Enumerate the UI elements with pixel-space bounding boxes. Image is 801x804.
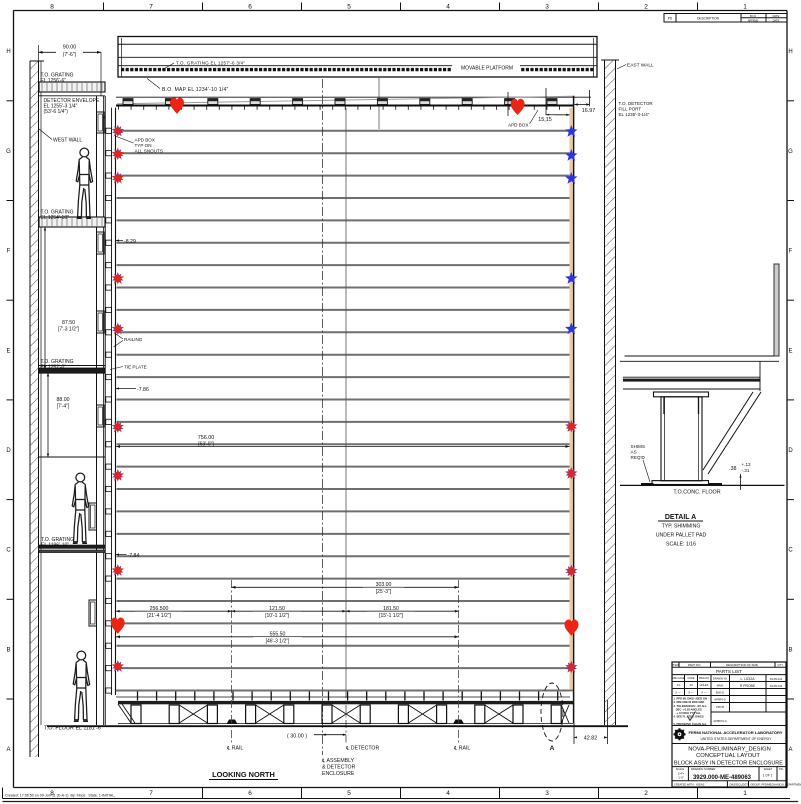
svg-text:E: E [6,348,10,354]
svg-text:Created: 17:06:50 on 09-Jun-11: Created: 17:06:50 on 09-Jun-11 (D-A-1) B… [5,794,115,798]
svg-text:PD: PD [668,17,673,21]
svg-text:A: A [6,747,10,753]
svg-text:[10'-1 1/2"]: [10'-1 1/2"] [265,613,289,619]
svg-text:87.50: 87.50 [62,320,75,326]
svg-text:3929.000-ME-489063: 3929.000-ME-489063 [693,775,752,781]
svg-text:3: 3 [545,4,549,11]
svg-text:F: F [789,249,793,255]
svg-text:3. TOLERANCES: .XX ALL: 3. TOLERANCES: .XX ALL [674,704,708,708]
svg-text:℄ ASSEMBLY: ℄ ASSEMBLY [321,758,355,764]
svg-text:256.500: 256.500 [150,606,169,612]
svg-text:EL 1196'-10": EL 1196'-10" [41,543,69,549]
svg-text:DWG-NO: DWG-NO [699,677,709,680]
svg-text:℄ RAIL: ℄ RAIL [453,746,470,752]
svg-text:DEC -+0.03 ANGLES: DEC -+0.03 ANGLES [674,707,702,711]
svg-text:QTY.: QTY. [778,663,784,667]
svg-text:RAILING: RAILING [124,337,143,342]
svg-text:CODE: CODE [688,677,695,680]
svg-text:4: 4 [446,4,450,11]
svg-text:[15'-1 1/2"]: [15'-1 1/2"] [379,613,403,619]
svg-text:SHEET: SHEET [764,767,773,771]
svg-text:APPRVD: APPRVD [748,18,759,22]
svg-text:APD BOX: APD BOX [508,122,528,127]
svg-text:T.O. GRATING EL 1257'-6 3/4": T.O. GRATING EL 1257'-6 3/4" [176,61,245,66]
svg-text:DRAWING NUMBER: DRAWING NUMBER [691,767,716,771]
svg-text:ITEM: ITEM [672,663,679,667]
svg-text:G: G [788,149,793,155]
svg-text:EL 1256'-6": EL 1256'-6" [41,78,67,84]
svg-text:FERMI NATIONAL ACCELERATOR LAB: FERMI NATIONAL ACCELERATOR LABORATORY [689,730,783,735]
svg-text:E: E [788,348,792,354]
svg-text:7: 7 [149,790,153,797]
svg-text:PPD-B: PPD-B [716,705,724,709]
svg-text:X —: X — [701,691,707,695]
svg-text:X —: X — [675,691,681,695]
svg-text:88.00: 88.00 [57,397,70,403]
svg-text:T.O. DETECTOR: T.O. DETECTOR [619,101,654,106]
svg-text:APD BOX: APD BOX [135,138,155,143]
svg-text:90.00: 90.00 [63,44,77,50]
svg-text:DESCRIPTION OF SIZE: DESCRIPTION OF SIZE [726,663,758,667]
svg-text:6: 6 [248,790,252,797]
svg-text:+.13: +.13 [742,462,752,467]
svg-text:04-05-011: 04-05-011 [770,677,783,681]
svg-text:DETAIL A: DETAIL A [665,514,696,521]
svg-text:15,15: 15,15 [538,117,552,123]
svg-text:℄ DETECTOR: ℄ DETECTOR [345,746,379,752]
svg-text:SIZE-CAGE: SIZE-CAGE [672,677,685,680]
svg-text:-7.86: -7.86 [137,387,149,393]
svg-text:TYP ON: TYP ON [135,143,152,148]
svg-text:GROUP: PPD/MECHANICAL DEPARTME: GROUP: PPD/MECHANICAL DEPARTMENT [751,782,801,786]
svg-text:D: D [6,448,11,454]
svg-text:R PROBE: R PROBE [740,684,756,688]
svg-text:TYP. SHIMMING: TYP. SHIMMING [662,524,701,530]
svg-text:NOVA-PRELIMINARY_DESIGN: NOVA-PRELIMINARY_DESIGN [688,747,771,753]
svg-text:H: H [6,49,10,55]
svg-text:H: H [788,49,792,55]
svg-text:A: A [788,747,792,753]
svg-text:3: 3 [545,790,549,797]
svg-text:APPRV-D: APPRV-D [714,698,725,702]
svg-text:555.50: 555.50 [270,632,286,638]
svg-text:[7'-4"]: [7'-4"] [57,404,70,410]
svg-text:BLOCK ASSY IN DETECTOR ENCLOSU: BLOCK ASSY IN DETECTOR ENCLOSURE [674,760,783,766]
svg-text:1'-0": 1'-0" [678,776,684,780]
svg-text:ALL SNOUTS: ALL SNOUTS [135,149,163,154]
svg-text:X —: X — [688,691,694,695]
svg-text:℄ RAIL: ℄ RAIL [226,746,243,752]
svg-text:HOLES: HOLES [700,683,709,687]
svg-text:G: G [6,149,11,155]
svg-text:8: 8 [50,4,54,11]
svg-text:DATE: DATE [773,14,780,18]
svg-text:PARTS LIST: PARTS LIST [716,669,742,674]
svg-text:756.00: 756.00 [198,435,215,441]
svg-text:( 30.00 ): ( 30.00 ) [287,734,307,740]
svg-text:[25'-3"]: [25'-3"] [376,589,392,595]
svg-text:B: B [788,647,792,653]
svg-text:16.97: 16.97 [582,108,596,114]
svg-text:AS: AS [631,450,637,455]
svg-text:181.50: 181.50 [383,606,399,612]
svg-text:L. LIDIJA: L. LIDIJA [741,677,756,681]
svg-text:[63'-0"]: [63'-0"] [198,441,214,447]
svg-text:-7.84: -7.84 [128,553,140,559]
svg-text:6: 6 [248,4,252,11]
svg-text:7: 7 [149,4,153,11]
svg-text:5: 5 [347,790,351,797]
svg-text:DWG/SCL/DGTL: DWG/SCL/DGTL [730,782,750,786]
svg-text:1: 1 [743,790,747,797]
svg-text:& DETECTOR: & DETECTOR [322,765,356,771]
svg-text:1: 1 [743,4,747,11]
svg-text:DRAWN-YD: DRAWN-YD [713,677,727,681]
svg-text:SCALE: SCALE [676,767,685,771]
svg-text:-8.29: -8.29 [124,239,136,245]
svg-text:SCALE: 1/16: SCALE: 1/16 [666,542,696,548]
svg-text:CREATED WITH : I-DEAS: CREATED WITH : I-DEAS [674,782,705,786]
svg-text:[46'-3 1/2"]: [46'-3 1/2"] [266,639,290,645]
svg-text:5: 5 [347,4,351,11]
svg-text:EL 1252'-0": EL 1252'-0" [41,365,67,371]
svg-text:[7'-3 1/2"]: [7'-3 1/2"] [58,327,80,333]
svg-text:[21'-4 1/2"]: [21'-4 1/2"] [147,613,171,619]
svg-text:1 OF 1: 1 OF 1 [763,774,773,778]
svg-text:ENG-D: ENG-D [716,691,724,695]
svg-text:DESCRIPTION: DESCRIPTION [697,17,719,21]
svg-text:303.00: 303.00 [376,582,392,588]
svg-text:(7'-6"): (7'-6") [63,52,77,58]
svg-text:UNITED STATES DEPARTMENT OF EN: UNITED STATES DEPARTMENT OF ENERGY [700,737,772,741]
svg-text:T.O.CONC. FLOOR: T.O.CONC. FLOOR [673,490,720,496]
svg-text:F: F [7,249,11,255]
svg-text:BY-D: BY-D [750,14,756,18]
svg-text:PART NO.: PART NO. [688,663,702,667]
svg-text:C: C [6,548,11,554]
svg-text:A: A [550,745,555,752]
svg-text:.01: .01 [676,683,680,687]
svg-text:MOVABLE PLATFORM: MOVABLE PLATFORM [461,65,513,71]
svg-text:UNDER PALLET PAD: UNDER PALLET PAD [656,533,707,539]
svg-text:-.31: -.31 [742,468,750,473]
svg-text:C: C [788,548,793,554]
svg-text:EL 1235'-3-1/4": EL 1235'-3-1/4" [619,112,650,117]
svg-text:.02: .02 [689,683,693,687]
svg-text:EAST WALL: EAST WALL [627,63,654,69]
svg-text:CONCEPTUAL LAYOUT: CONCEPTUAL LAYOUT [696,753,760,759]
svg-text:(53'-6 1/4"): (53'-6 1/4") [44,109,69,115]
svg-text:.38: .38 [729,466,737,472]
svg-text:WEST WALL: WEST WALL [53,138,82,144]
svg-text:ENCLOSURE: ENCLOSURE [322,771,355,777]
svg-text:121.50: 121.50 [269,606,285,612]
svg-text:2: 2 [644,790,648,797]
svg-text:DATE: DATE [773,18,780,22]
svg-text:-+ 0.5 DEG TYP ALL: -+ 0.5 DEG TYP ALL [674,711,702,715]
svg-text:1. PPD ML DWG USED ON: 1. PPD ML DWG USED ON [674,697,707,701]
svg-text:FILL PORT: FILL PORT [619,107,642,112]
svg-text:D: D [788,448,793,454]
svg-text:B.O. MAP EL 1234'-10 1/4": B.O. MAP EL 1234'-10 1/4" [162,87,229,93]
svg-text:42.82: 42.82 [584,736,598,742]
svg-text:2. DIM ARE IN INCH-MM: 2. DIM ARE IN INCH-MM [674,700,705,704]
svg-text:TIE PLATE: TIE PLATE [124,364,147,369]
svg-text:REQ'D: REQ'D [631,455,646,460]
svg-text:B: B [6,647,10,653]
svg-text:4: 4 [446,790,450,797]
svg-text:PD-: PD- [779,767,784,771]
svg-text:MAIN: MAIN [717,684,724,688]
svg-text:04-05-011: 04-05-011 [770,684,783,688]
svg-text:LOOKING NORTH: LOOKING NORTH [212,770,275,779]
svg-text:2: 2 [644,4,648,11]
svg-text:APPROV-A: APPROV-A [713,719,727,723]
svg-text:EL 1254'-10": EL 1254'-10" [41,215,70,221]
svg-text:SHIMS: SHIMS [631,444,646,449]
